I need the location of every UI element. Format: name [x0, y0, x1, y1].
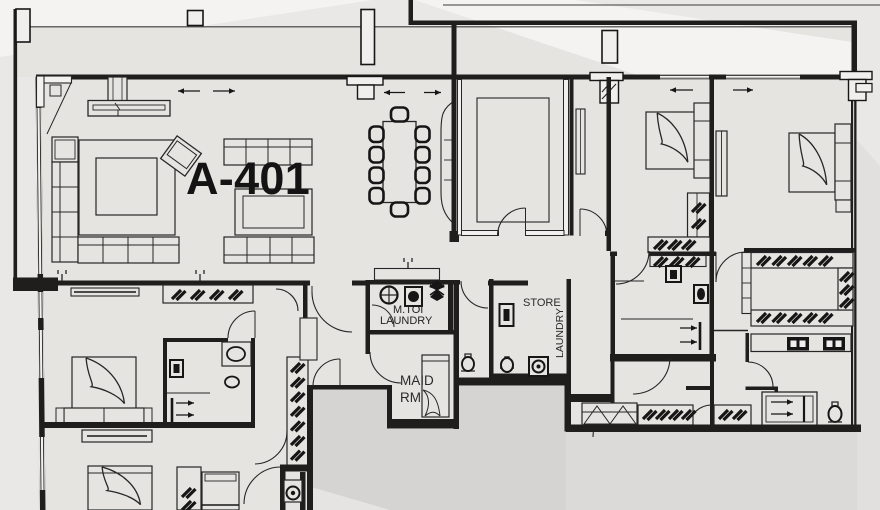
- svg-text:RM: RM: [400, 390, 421, 405]
- svg-text:A-401: A-401: [186, 153, 310, 204]
- svg-text:STORE: STORE: [523, 297, 561, 309]
- svg-text:LAUNDRY: LAUNDRY: [554, 308, 566, 358]
- svg-text:LAUNDRY: LAUNDRY: [380, 315, 433, 327]
- svg-text:MAID: MAID: [400, 373, 434, 388]
